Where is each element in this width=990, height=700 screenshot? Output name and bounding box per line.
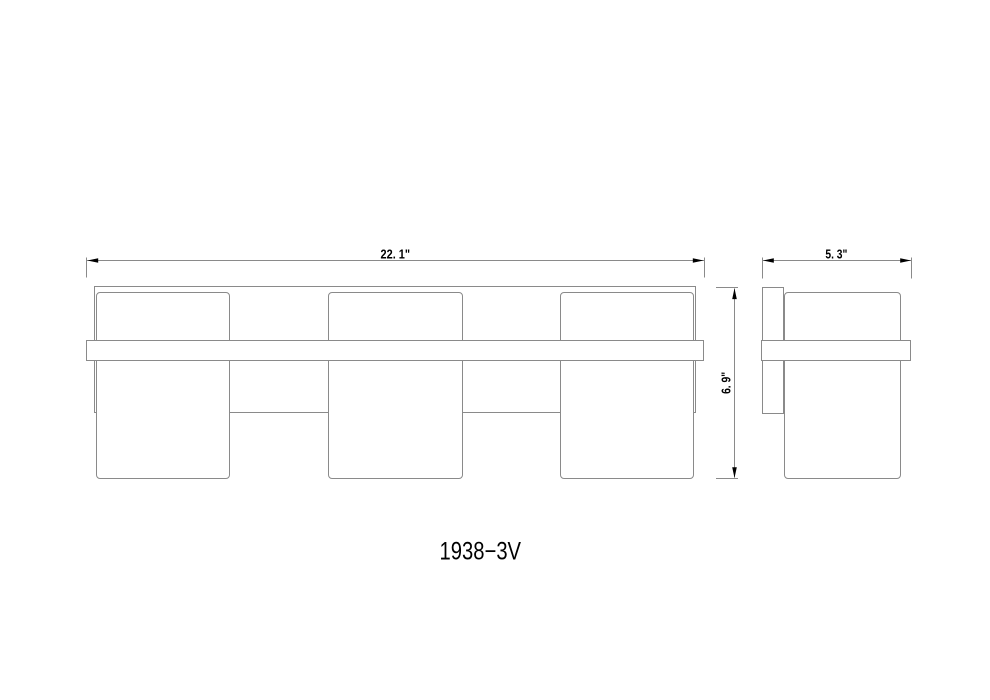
svg-text:5. 3": 5. 3" xyxy=(825,246,847,261)
svg-text:6. 9": 6. 9" xyxy=(718,372,733,394)
svg-text:22. 1": 22. 1" xyxy=(381,246,411,261)
svg-text:1938−3V: 1938−3V xyxy=(440,538,522,566)
